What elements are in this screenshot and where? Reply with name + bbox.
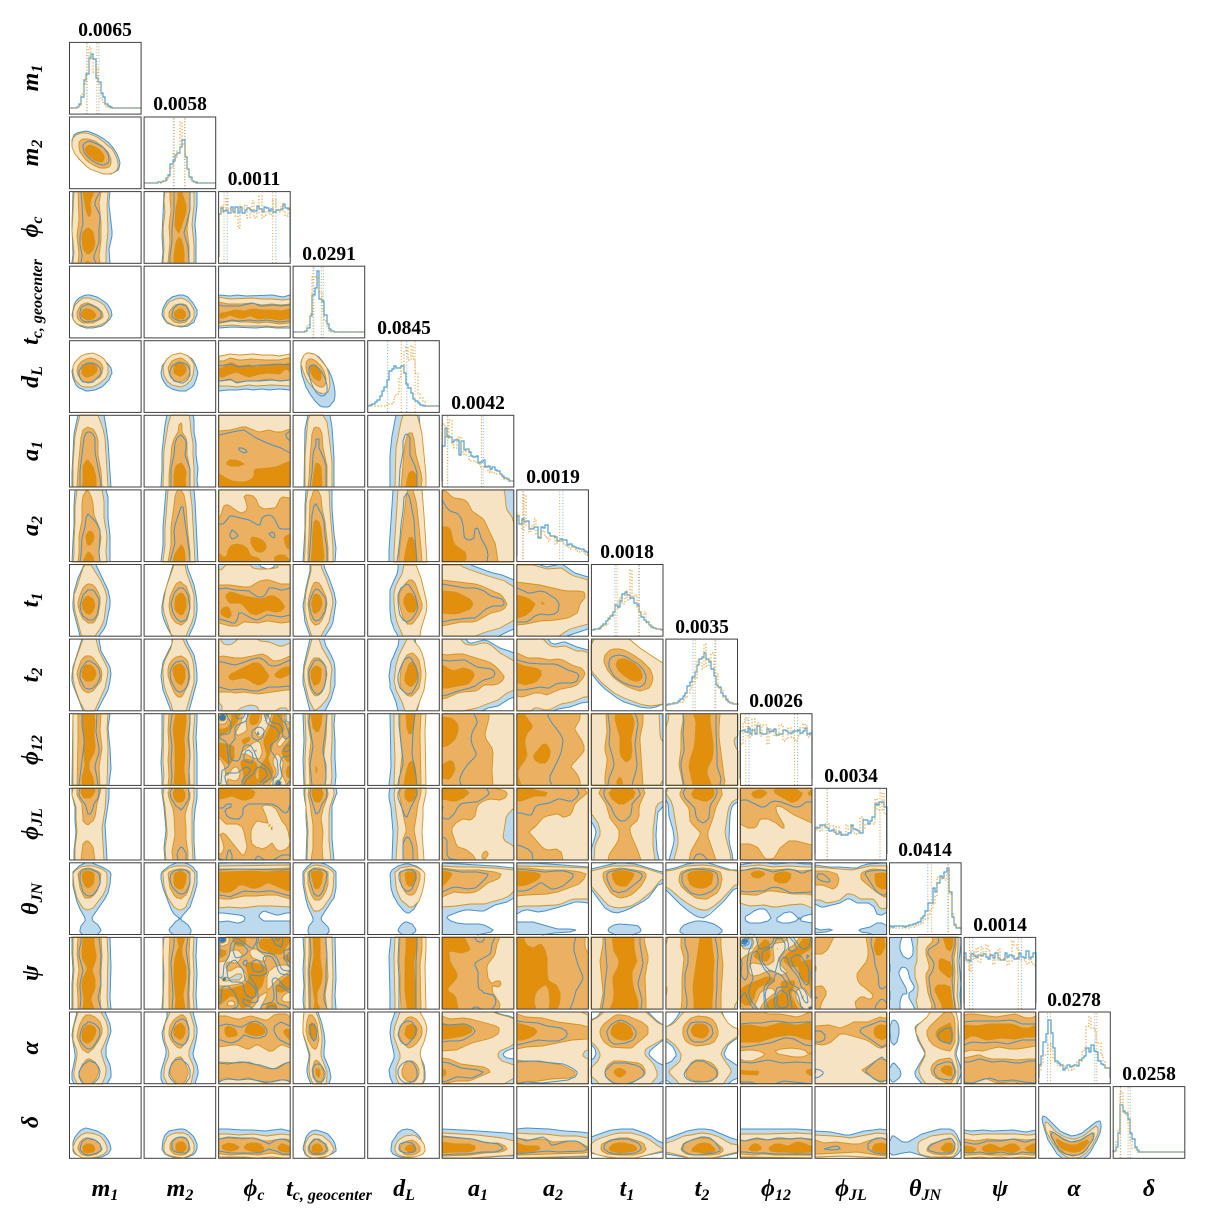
svg-text:0.0042: 0.0042 — [451, 393, 505, 414]
svg-text:0.0414: 0.0414 — [898, 840, 952, 861]
svg-text:δ: δ — [1143, 1176, 1155, 1202]
svg-text:0.0845: 0.0845 — [377, 318, 431, 339]
svg-text:0.0291: 0.0291 — [302, 244, 356, 265]
svg-text:0.0011: 0.0011 — [228, 169, 281, 190]
svg-text:0.0014: 0.0014 — [973, 915, 1027, 936]
svg-text:α: α — [18, 1041, 44, 1055]
svg-text:ψ: ψ — [992, 1176, 1009, 1202]
svg-text:ψ: ψ — [18, 964, 44, 981]
svg-text:0.0258: 0.0258 — [1122, 1064, 1176, 1085]
svg-text:0.0035: 0.0035 — [675, 617, 729, 638]
svg-text:0.0065: 0.0065 — [78, 20, 132, 41]
svg-text:0.0278: 0.0278 — [1047, 990, 1101, 1011]
svg-text:δ: δ — [18, 1116, 44, 1128]
svg-text:0.0034: 0.0034 — [824, 766, 878, 787]
svg-text:0.0058: 0.0058 — [153, 94, 207, 115]
svg-text:0.0026: 0.0026 — [749, 691, 803, 712]
svg-text:0.0019: 0.0019 — [526, 467, 580, 488]
svg-text:0.0018: 0.0018 — [600, 542, 654, 563]
svg-text:α: α — [1067, 1176, 1081, 1202]
